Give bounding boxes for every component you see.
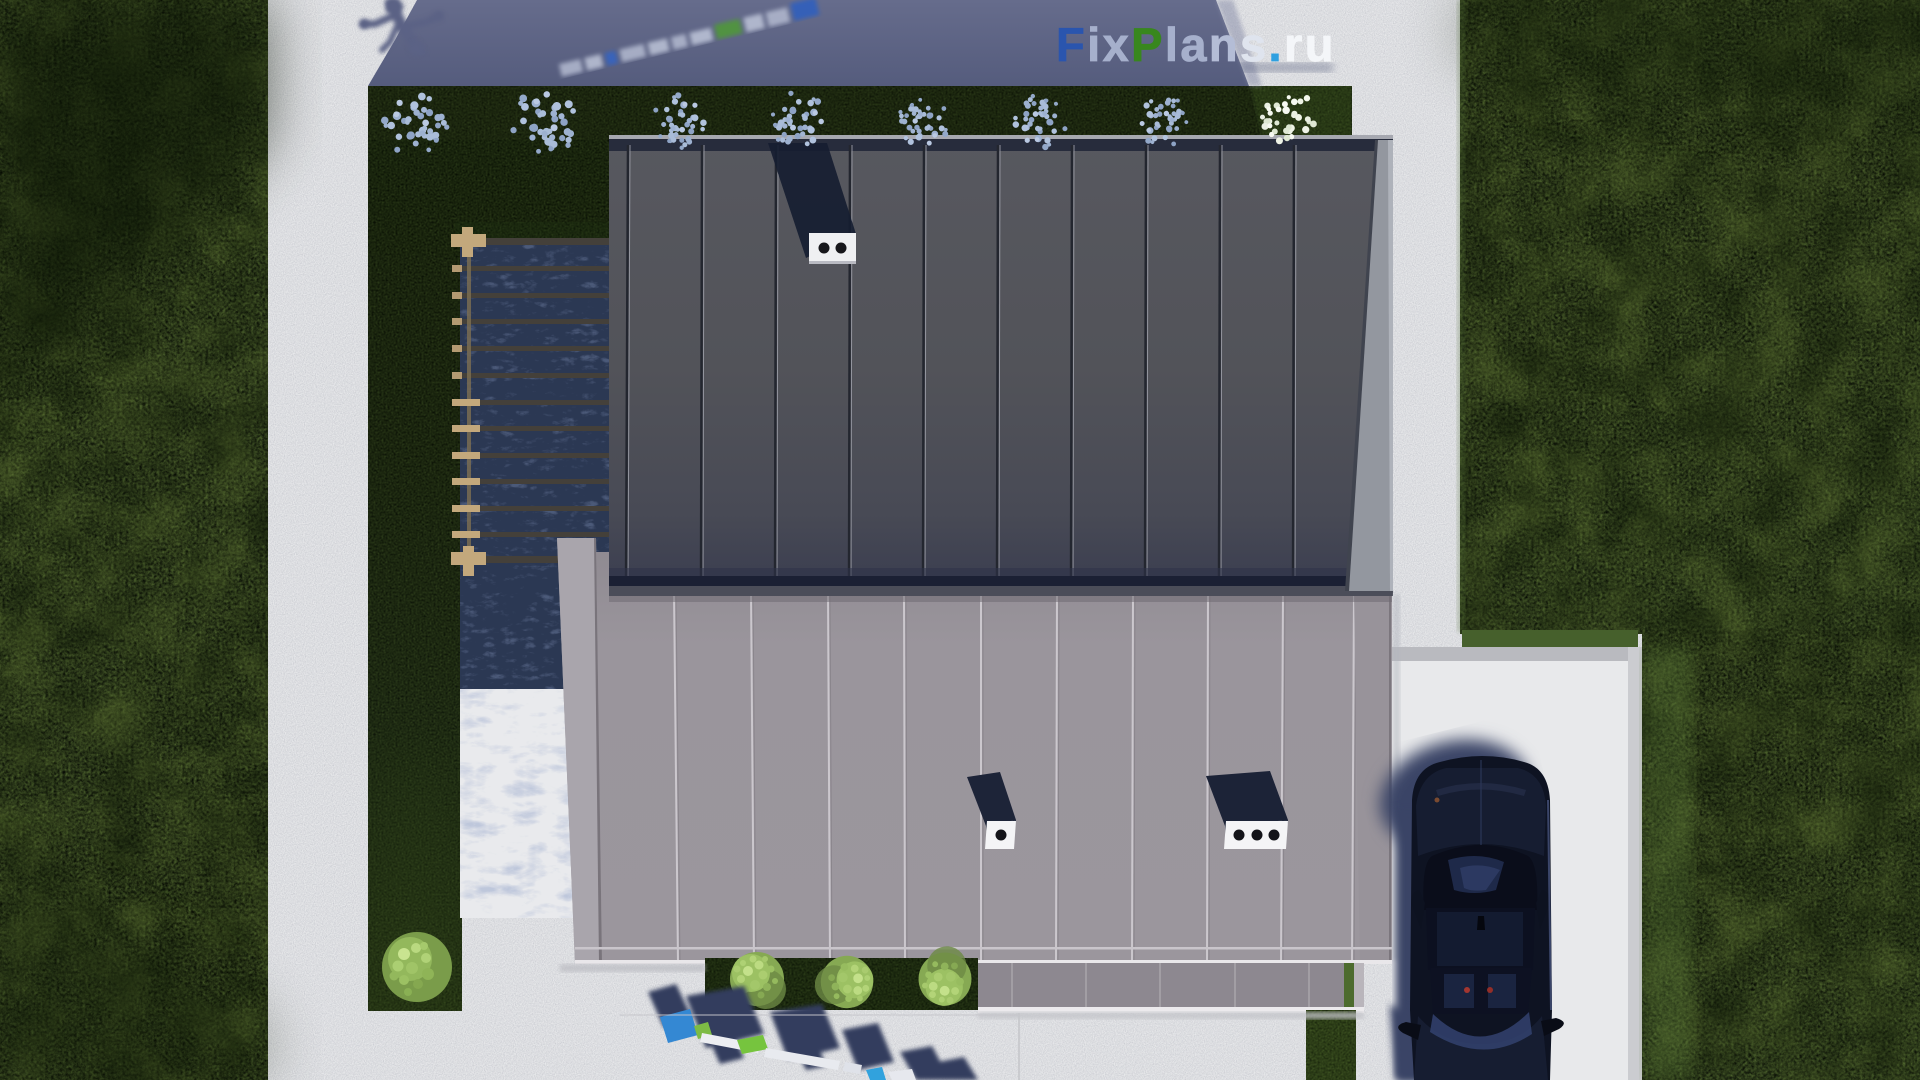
- svg-text:FixPlans.ru: FixPlans.ru: [1056, 18, 1336, 71]
